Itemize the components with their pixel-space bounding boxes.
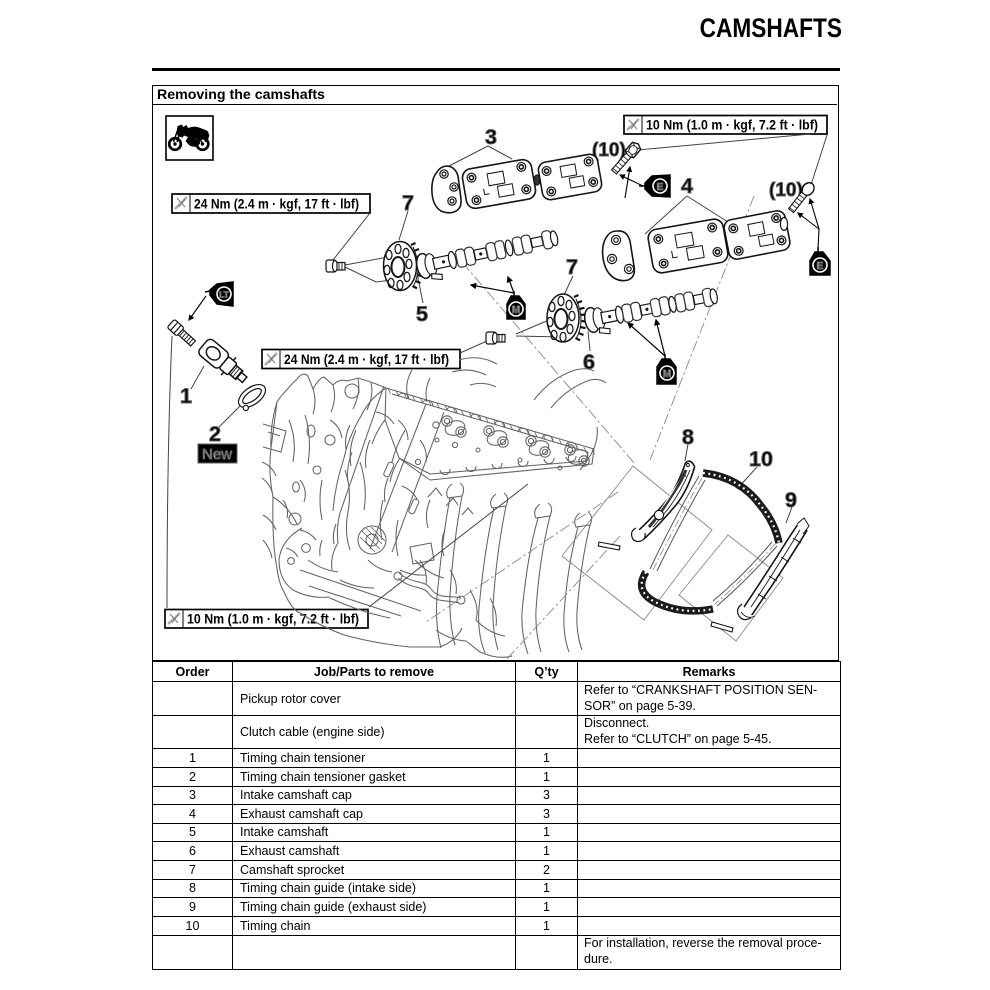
svg-text:24 Nm (2.4 m · kgf, 17 ft · lb: 24 Nm (2.4 m · kgf, 17 ft · lbf) [284, 352, 449, 367]
svg-text:2: 2 [209, 422, 221, 446]
svg-text:E: E [657, 182, 664, 193]
svg-text:M: M [512, 305, 520, 316]
svg-text:7: 7 [402, 191, 414, 215]
svg-text:8: 8 [682, 425, 694, 449]
svg-text:New: New [202, 446, 232, 463]
svg-text:1: 1 [180, 384, 192, 408]
svg-text:LT: LT [219, 290, 230, 300]
svg-text:10: 10 [749, 447, 773, 471]
svg-text:4: 4 [681, 174, 693, 198]
svg-text:E: E [817, 261, 824, 272]
svg-text:6: 6 [583, 350, 595, 374]
svg-text:24 Nm (2.4 m · kgf, 17 ft · lb: 24 Nm (2.4 m · kgf, 17 ft · lbf) [194, 197, 359, 212]
svg-text:7: 7 [566, 255, 578, 279]
svg-text:5: 5 [416, 302, 428, 326]
svg-text:10 Nm (1.0 m · kgf, 7.2 ft · l: 10 Nm (1.0 m · kgf, 7.2 ft · lbf) [646, 118, 818, 133]
svg-text:M: M [663, 369, 671, 380]
svg-text:10 Nm (1.0 m · kgf, 7.2 ft · l: 10 Nm (1.0 m · kgf, 7.2 ft · lbf) [187, 612, 359, 627]
svg-text:3: 3 [485, 125, 497, 149]
svg-text:9: 9 [785, 488, 797, 512]
